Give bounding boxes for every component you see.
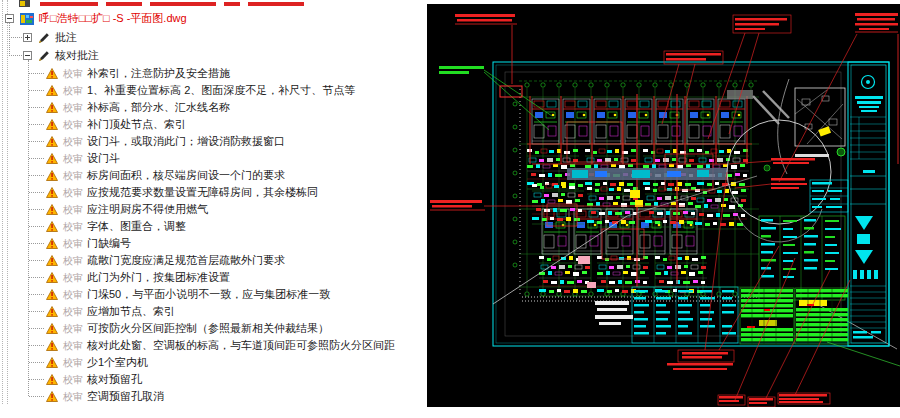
legend-bars — [595, 301, 633, 325]
item-status: 校审 — [63, 135, 83, 149]
file-icon — [19, 0, 30, 7]
tree-item[interactable]: 校审设门斗 — [0, 150, 427, 167]
warning-icon — [46, 289, 58, 300]
item-status: 校审 — [63, 152, 83, 166]
tree-node-check-annotations[interactable]: 核对批注 — [0, 47, 427, 64]
item-status: 校审 — [63, 339, 83, 353]
clipped-red-text — [106, 2, 142, 6]
item-status: 校审 — [63, 203, 83, 217]
warning-icon — [46, 187, 58, 198]
item-status: 校审 — [63, 169, 83, 183]
item-text: 空调预留孔取消 — [87, 389, 164, 404]
item-status: 校审 — [63, 373, 83, 387]
tree-node-label: 核对批注 — [55, 48, 99, 63]
cad-drawing — [427, 4, 900, 407]
expand-toggle[interactable] — [23, 33, 32, 42]
item-text: 此门为外门，按集团标准设置 — [87, 270, 230, 285]
annotation-tree-panel: 呼□浩特□□扩□ -S -平面图.dwg 批注 核对批注 校审补索引，注意防护及… — [0, 0, 427, 418]
item-status: 校审 — [63, 322, 83, 336]
tree-item[interactable]: 校审应增加节点、索引 — [0, 303, 427, 320]
tree-symbol — [837, 148, 845, 156]
tree-item-dwg-file[interactable]: 呼□浩特□□扩□ -S -平面图.dwg — [0, 10, 427, 27]
warning-icon — [46, 119, 58, 130]
item-text: 门缺编号 — [87, 236, 131, 251]
warning-icon — [46, 255, 58, 266]
tree-item[interactable]: 校审核对此处窗、空调板的标高，与车道顶间距可参照防火分区间距 — [0, 337, 427, 354]
tree-item[interactable]: 校审门缺编号 — [0, 235, 427, 252]
item-status: 校审 — [63, 288, 83, 302]
item-status: 校审 — [63, 186, 83, 200]
item-status: 校审 — [63, 101, 83, 115]
warning-icon — [46, 85, 58, 96]
warning-icon — [46, 221, 58, 232]
cad-viewport[interactable] — [427, 4, 900, 407]
tree-symbol — [764, 165, 770, 171]
item-status: 校审 — [63, 84, 83, 98]
warning-icon — [46, 357, 58, 368]
tree-item[interactable]: 校审补门顶处节点、索引 — [0, 116, 427, 133]
tree-item[interactable]: 校审应按规范要求数量设置无障碍房间，其余楼栋同 — [0, 184, 427, 201]
item-text: 字体、图重合，调整 — [87, 219, 186, 234]
tree-item[interactable]: 校审字体、图重合，调整 — [0, 218, 427, 235]
warning-icon — [46, 136, 58, 147]
tree-item[interactable]: 校审标房间面积，核尽端房间设一个门的要求 — [0, 167, 427, 184]
tree-item[interactable]: 校审此门为外门，按集团标准设置 — [0, 269, 427, 286]
tree-item[interactable]: 校审应注明厨房不得使用燃气 — [0, 201, 427, 218]
item-status: 校审 — [63, 220, 83, 234]
item-status: 校审 — [63, 237, 83, 251]
inset-caption-text — [795, 154, 829, 157]
warning-icon — [46, 323, 58, 334]
tree-node-label: 批注 — [55, 30, 77, 45]
warning-icon — [46, 340, 58, 351]
green-schedule-table — [740, 288, 794, 344]
tree-item[interactable]: 校审少1个室内机 — [0, 354, 427, 371]
item-text: 设门斗 — [87, 151, 120, 166]
item-text: 核对预留孔 — [87, 372, 142, 387]
warning-icon — [46, 391, 58, 402]
tree-item[interactable]: 校审空调预留孔取消 — [0, 388, 427, 405]
item-text: 补门顶处节点、索引 — [87, 117, 186, 132]
item-status: 校审 — [63, 271, 83, 285]
item-text: 应按规范要求数量设置无障碍房间，其余楼栋同 — [87, 185, 318, 200]
tree-item[interactable]: 校审核对预留孔 — [0, 371, 427, 388]
item-status: 校审 — [63, 390, 83, 404]
collapse-toggle[interactable] — [23, 51, 32, 60]
dwg-file-name: 呼□浩特□□扩□ -S -平面图.dwg — [39, 11, 187, 26]
tree-item[interactable]: 校审疏散门宽度应满足规范首层疏散外门要求 — [0, 252, 427, 269]
item-text: 应增加节点、索引 — [87, 304, 175, 319]
collapse-toggle[interactable] — [5, 14, 14, 23]
item-text: 设门斗，或取消此门；增设消防救援窗口 — [87, 134, 285, 149]
warning-icon — [46, 272, 58, 283]
item-text: 少1个室内机 — [87, 355, 148, 370]
tree-item[interactable]: 校审补标高，部分水、汇水线名称 — [0, 99, 427, 116]
warning-icon — [46, 374, 58, 385]
warning-icon — [46, 68, 58, 79]
dwg-thumbnail-icon — [20, 13, 34, 25]
annotation-review-window: 呼□浩特□□扩□ -S -平面图.dwg 批注 核对批注 校审补索引，注意防护及… — [0, 0, 900, 418]
clipped-red-text — [40, 2, 98, 6]
item-status: 校审 — [63, 254, 83, 268]
item-status: 校审 — [63, 305, 83, 319]
warning-icon — [46, 204, 58, 215]
item-status: 校审 — [63, 118, 83, 132]
item-text: 疏散门宽度应满足规范首层疏散外门要求 — [87, 253, 285, 268]
green-schedule-table — [795, 288, 849, 344]
item-status: 校审 — [63, 67, 83, 81]
warning-icon — [46, 153, 58, 164]
clipped-red-text — [224, 2, 240, 6]
warning-icon — [46, 306, 58, 317]
item-text: 标房间面积，核尽端房间设一个门的要求 — [87, 168, 285, 183]
tree-node-annotations[interactable]: 批注 — [0, 29, 427, 46]
clipped-red-text — [248, 2, 304, 6]
tree-item[interactable]: 校审设门斗，或取消此门；增设消防救援窗口 — [0, 133, 427, 150]
item-text: 补索引，注意防护及安全措施 — [87, 66, 230, 81]
pencil-icon — [38, 50, 50, 62]
item-status: 校审 — [63, 356, 83, 370]
warning-icon — [46, 170, 58, 181]
pencil-icon — [38, 32, 50, 44]
clipped-red-text — [150, 2, 216, 6]
warning-icon — [46, 238, 58, 249]
item-text: 核对此处窗、空调板的标高，与车道顶间距可参照防火分区间距 — [87, 338, 395, 353]
title-block — [848, 62, 889, 346]
tree-item[interactable]: 校审可按防火分区间距控制（参照最新相关仲裁结果） — [0, 320, 427, 337]
item-text: 应注明厨房不得使用燃气 — [87, 202, 208, 217]
tree-item[interactable]: 校审1、补重要位置标高 2、图面深度不足，补尺寸、节点等 — [0, 82, 427, 99]
warning-icon — [46, 102, 58, 113]
tree-item[interactable]: 校审补索引，注意防护及安全措施 — [0, 65, 427, 82]
item-text: 门垛50，与平面小说明不一致，应与集团标准一致 — [87, 287, 330, 302]
tree-item[interactable]: 校审门垛50，与平面小说明不一致，应与集团标准一致 — [0, 286, 427, 303]
tree-item-clipped-file-row[interactable] — [0, 0, 427, 9]
item-text: 补标高，部分水、汇水线名称 — [87, 100, 230, 115]
green-callout — [439, 66, 552, 130]
item-text: 可按防火分区间距控制（参照最新相关仲裁结果） — [87, 321, 329, 336]
item-text: 1、补重要位置标高 2、图面深度不足，补尺寸、节点等 — [87, 83, 355, 98]
